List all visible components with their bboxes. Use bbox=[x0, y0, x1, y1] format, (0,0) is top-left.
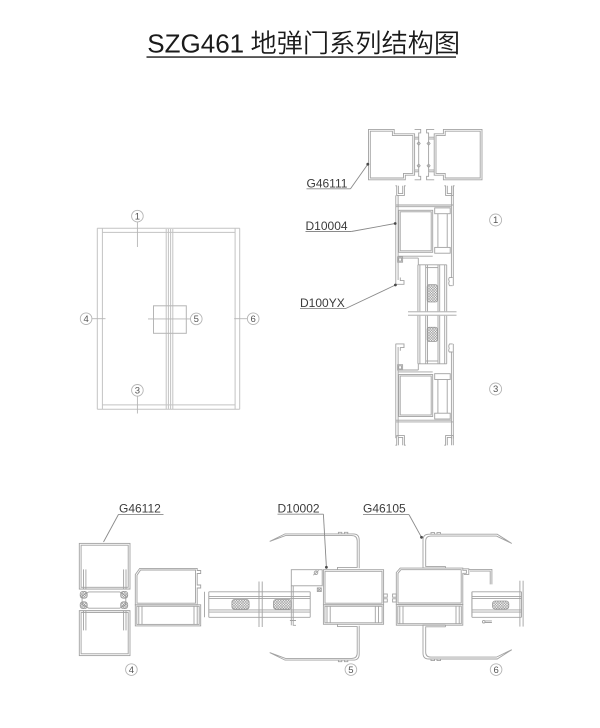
svg-text:D10004: D10004 bbox=[306, 219, 348, 233]
svg-text:G46111: G46111 bbox=[307, 176, 348, 190]
svg-text:1: 1 bbox=[135, 211, 140, 222]
svg-text:G46112: G46112 bbox=[119, 501, 161, 515]
svg-text:G46105: G46105 bbox=[363, 501, 406, 515]
svg-text:3: 3 bbox=[493, 384, 498, 395]
svg-text:SZG461: SZG461 bbox=[147, 28, 244, 58]
svg-text:3: 3 bbox=[135, 386, 140, 397]
svg-text:1: 1 bbox=[493, 215, 498, 226]
svg-text:6: 6 bbox=[493, 665, 498, 676]
svg-text:D10002: D10002 bbox=[278, 501, 320, 515]
svg-text:5: 5 bbox=[194, 314, 199, 325]
svg-text:5: 5 bbox=[348, 665, 353, 676]
svg-text:D100YX: D100YX bbox=[300, 296, 345, 310]
svg-text:6: 6 bbox=[251, 314, 256, 325]
svg-text:4: 4 bbox=[129, 665, 134, 676]
svg-text:4: 4 bbox=[83, 314, 88, 325]
